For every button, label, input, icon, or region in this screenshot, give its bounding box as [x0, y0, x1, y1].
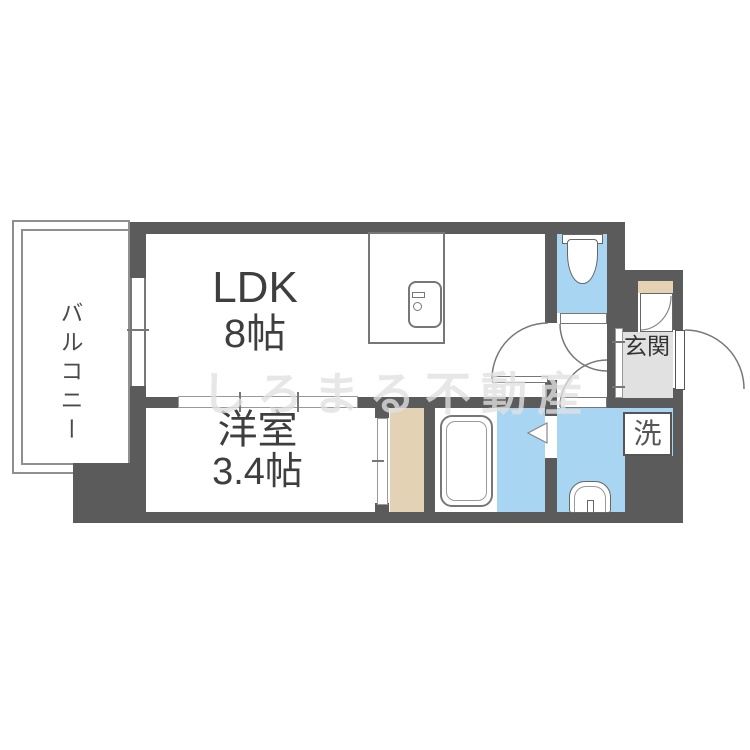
wall-entrance-right-upper — [673, 281, 683, 330]
ldk-label-group: LDK 8帖 — [160, 264, 350, 356]
watermark-text: しろまる不動産 — [201, 358, 593, 424]
laundry-box: 洗 — [623, 412, 672, 456]
wall-entrance-left-block — [618, 281, 638, 332]
washbasin-faucet — [587, 500, 594, 513]
wall-entrance-bottom-band — [607, 398, 683, 408]
wall-bottom — [73, 512, 683, 523]
wall-entrance-top — [618, 270, 683, 281]
entrance-door-arc — [685, 330, 744, 389]
toilet-door-leaf — [560, 313, 607, 324]
western-room-size-label: 3.4帖 — [150, 452, 365, 494]
entrance-step-tick-2 — [612, 386, 625, 388]
shoe-box — [638, 281, 673, 293]
stove-knob — [413, 302, 422, 311]
room-sliding-door-tick — [372, 460, 384, 462]
bathtub-inner — [446, 421, 487, 501]
wall-room-divider-left — [130, 397, 178, 408]
wall-ldk-right-upper — [545, 222, 557, 323]
floorplan: バルコニー 洗 — [0, 0, 750, 750]
ldk-label: LDK — [160, 264, 350, 312]
balcony-label: バルコニー — [54, 283, 82, 463]
ldk-size-label: 8帖 — [160, 312, 350, 356]
balcony-window-tick — [127, 329, 149, 331]
shoe-cabinet — [640, 293, 673, 332]
balcony-window — [130, 278, 146, 386]
wall-washroom-corner-block — [625, 456, 673, 516]
laundry-label: 洗 — [633, 419, 661, 450]
entrance-label: 玄関 — [616, 334, 678, 359]
wall-left-upper — [130, 222, 146, 278]
stove-bar — [412, 292, 425, 298]
wall-bath-washroom-bottom — [545, 457, 557, 512]
